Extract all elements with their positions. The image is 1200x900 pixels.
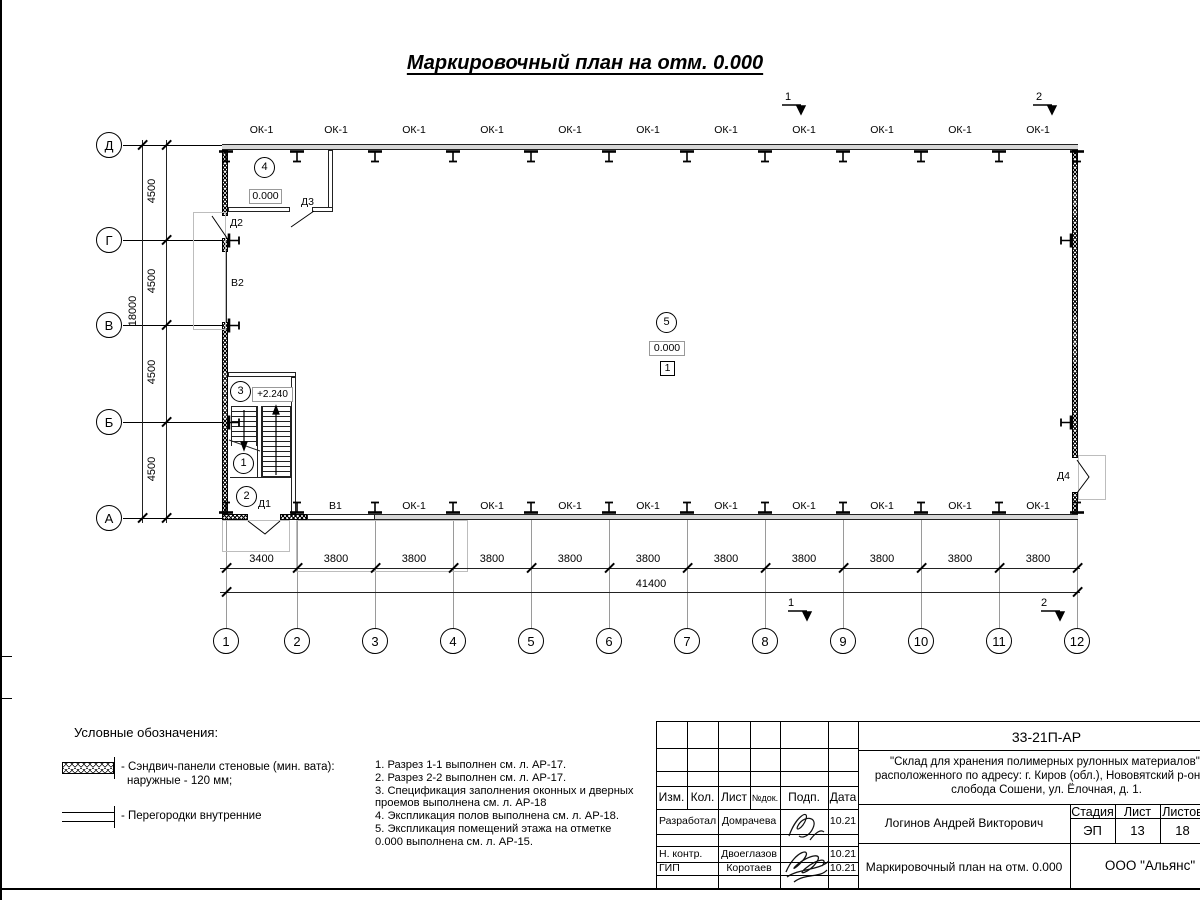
column-icon (228, 415, 241, 431)
titleblock-line (780, 721, 781, 888)
axis-line (123, 145, 222, 146)
legend-swatch-endbar (114, 757, 115, 779)
legend-swatch-sandwich-panel (62, 762, 114, 774)
door-label-d3: Д3 (301, 196, 314, 208)
note-line: 3. Спецификация заполнения оконных и две… (375, 785, 634, 798)
axis-circle-row: Б (96, 409, 122, 435)
column-icon (445, 150, 461, 163)
section-mark-2-bottom: 2 (1037, 597, 1051, 609)
titleblock-line (1115, 804, 1116, 843)
window-label-bottom: ОК-1 (623, 500, 673, 512)
exterior-pad-outline (1078, 455, 1106, 500)
column-icon (679, 150, 695, 163)
wall-segment (228, 372, 296, 377)
tb-date-gip: 10.21 (828, 862, 858, 874)
titleblock-line (687, 721, 688, 809)
note-line: 0.000 выполнена см. л. АР-15. (375, 836, 634, 849)
dimension-line (220, 592, 1080, 593)
legend-item1-line1: - Сэндвич-панели стеновые (мин. вата): (121, 761, 335, 774)
column-icon (289, 150, 305, 163)
column-icon (991, 150, 1007, 163)
tb-sheetno-header: Лист (1115, 805, 1160, 819)
window-label-top: ОК-1 (779, 124, 829, 136)
axis-circle-col: 10 (908, 628, 934, 654)
dim-chain-left: 4500 (146, 444, 158, 494)
signature-developer (789, 814, 824, 840)
axis-circle-col: 8 (752, 628, 778, 654)
drawing-sheet: Маркировочный план на отм. 0.000 ДГВБА12… (0, 0, 1200, 900)
tb-name-ncontrol: Двоеглазов (718, 848, 780, 860)
column-icon (1069, 501, 1085, 514)
axis-line (123, 518, 222, 519)
tb-sheets-value: 18 (1160, 823, 1200, 838)
column-icon (757, 501, 773, 514)
column-icon (523, 501, 539, 514)
tb-col-list: Лист (718, 790, 750, 804)
tb-stage-header: Стадия (1070, 805, 1115, 819)
window-label-bottom: ОК-1 (1013, 500, 1063, 512)
titleblock-line (1160, 804, 1161, 843)
note-line: проемов выполнена см. л. АР-18 (375, 797, 634, 810)
window-label-top: ОК-1 (935, 124, 985, 136)
dim-chain-left: 4500 (146, 166, 158, 216)
column-icon (679, 501, 695, 514)
dim-chain-bottom: 3800 (774, 553, 834, 565)
dimension-line (142, 140, 143, 523)
legend-item2-line1: - Перегородки внутренние (121, 810, 262, 823)
column-icon (523, 150, 539, 163)
axis-circle-col: 12 (1064, 628, 1090, 654)
axis-circle-col: 7 (674, 628, 700, 654)
wall-segment (1072, 150, 1078, 458)
window-label-bottom: ОК-1 (545, 500, 595, 512)
window-label-top: ОК-1 (623, 124, 673, 136)
note-line: 4. Экспликация полов выполнена см. л. АР… (375, 810, 634, 823)
dim-chain-bottom: 3800 (462, 553, 522, 565)
dim-chain-left: 4500 (146, 347, 158, 397)
exterior-pad-outline (222, 520, 290, 552)
column-icon (218, 501, 234, 514)
project-line2: расположенного по адресу: г. Киров (обл.… (858, 770, 1200, 782)
tb-date-developer: 10.21 (828, 815, 858, 827)
project-line1: "Склад для хранения полимерных рулонных … (858, 756, 1200, 768)
room-marker-3: 3 (230, 381, 251, 402)
column-icon (367, 150, 383, 163)
elevation-box-hall: 0.000 (649, 341, 685, 356)
dim-total-bottom: 41400 (611, 578, 691, 590)
axis-circle-row: А (96, 505, 122, 531)
column-icon (228, 318, 241, 334)
titleblock-line (828, 721, 829, 888)
tb-col-ndok: №док. (750, 793, 780, 803)
grid-extension-line (921, 520, 922, 628)
tb-approver: Логинов Андрей Викторович (858, 816, 1070, 830)
legend-item1-line2: наружные - 120 мм; (127, 775, 232, 788)
window-label-bottom: ОК-1 (701, 500, 751, 512)
tb-role-ncontrol: Н. контр. (659, 848, 702, 860)
dim-chain-bottom: 3800 (618, 553, 678, 565)
stair-flight (262, 406, 291, 478)
section-mark-1-top: 1 (781, 91, 795, 103)
column-icon (757, 150, 773, 163)
tb-role-gip: ГИП (659, 862, 680, 874)
column-icon (1060, 415, 1073, 431)
doc-code: 33-21П-АР (858, 729, 1200, 745)
window-label-top: ОК-1 (857, 124, 907, 136)
door-label-d1: Д1 (258, 498, 271, 510)
tb-stage-value: ЭП (1070, 823, 1115, 838)
partition-label-v1: В1 (329, 500, 342, 512)
door-label-d2: Д2 (230, 217, 243, 229)
dim-chain-bottom: 3800 (306, 553, 366, 565)
titleblock-line (718, 721, 719, 888)
axis-circle-row: Г (96, 227, 122, 253)
axis-circle-row: Д (96, 132, 122, 158)
column-icon (991, 501, 1007, 514)
room-marker-1: 1 (233, 453, 254, 474)
tb-date-ncontrol: 10.21 (828, 848, 858, 860)
dim-chain-bottom: 3800 (852, 553, 912, 565)
grid-extension-line (999, 520, 1000, 628)
dim-chain-bottom: 3800 (384, 553, 444, 565)
window-label-top: ОК-1 (545, 124, 595, 136)
fold-mark (0, 698, 12, 699)
tb-col-izm: Изм. (656, 790, 687, 804)
grid-extension-line (531, 520, 532, 628)
titleblock-line (1070, 804, 1071, 888)
axis-line (123, 422, 222, 423)
column-icon (367, 501, 383, 514)
sheet-bottom-border (0, 888, 1200, 890)
column-icon (289, 501, 305, 514)
door-swing-d3 (291, 211, 314, 227)
grid-extension-line (687, 520, 688, 628)
section-mark-1-bottom: 1 (784, 597, 798, 609)
column-icon (913, 150, 929, 163)
dim-chain-left: 4500 (146, 256, 158, 306)
window-label-top: ОК-1 (311, 124, 361, 136)
axis-circle-col: 2 (284, 628, 310, 654)
dim-chain-bottom: 3800 (1008, 553, 1068, 565)
window-label-top: ОК-1 (701, 124, 751, 136)
column-icon (835, 501, 851, 514)
legend-swatch-endbar (114, 806, 115, 828)
room-marker-2: 2 (236, 486, 257, 507)
tb-sheets-header: Листов (1160, 805, 1200, 819)
note-line: 5. Экспликация помещений этажа на отметк… (375, 823, 634, 836)
note-line: 2. Разрез 2-2 выполнен см. л. АР-17. (375, 772, 634, 785)
axis-circle-col: 1 (213, 628, 239, 654)
axis-circle-row: В (96, 312, 122, 338)
window-label-bottom: ОК-1 (779, 500, 829, 512)
wall-segment (257, 406, 262, 478)
titleblock-line (858, 750, 1200, 751)
window-label-top: ОК-1 (1013, 124, 1063, 136)
tb-company: ООО "Альянс" (1070, 858, 1200, 873)
elevation-box-vestibule: 0.000 (249, 189, 282, 204)
sheet-left-border (0, 0, 2, 900)
window-label-bottom: ОК-1 (857, 500, 907, 512)
window-label-bottom: ОК-1 (389, 500, 439, 512)
partition-label-v2: В2 (231, 277, 244, 289)
grid-extension-line (843, 520, 844, 628)
dim-chain-bottom: 3800 (696, 553, 756, 565)
section-mark-2-top: 2 (1032, 91, 1046, 103)
titleblock-line (858, 804, 1200, 805)
window-label-top: ОК-1 (467, 124, 517, 136)
tb-col-podp: Подп. (780, 790, 828, 804)
room-marker-4: 4 (254, 157, 275, 178)
axis-circle-col: 11 (986, 628, 1012, 654)
dim-chain-bottom: 3400 (232, 553, 292, 565)
wall-segment (222, 144, 1078, 150)
room-marker-5: 5 (656, 312, 677, 333)
dim-chain-bottom: 3800 (540, 553, 600, 565)
grid-extension-line (609, 520, 610, 628)
wall-segment (230, 477, 291, 478)
titleblock-line (750, 721, 751, 809)
dim-total-left: 18000 (127, 286, 139, 336)
tb-name-gip: Коротаев (718, 862, 780, 874)
project-line3: слобода Сошени, ул. Ёлочная, д. 1. (858, 784, 1200, 796)
axis-circle-col: 9 (830, 628, 856, 654)
axis-circle-col: 3 (362, 628, 388, 654)
tb-name-developer: Домрачева (718, 815, 780, 827)
note-line: 1. Разрез 1-1 выполнен см. л. АР-17. (375, 759, 634, 772)
dimension-line (220, 568, 1080, 569)
signature-ncontrol-gip (786, 852, 829, 882)
column-icon (601, 501, 617, 514)
column-icon (445, 501, 461, 514)
column-icon (601, 150, 617, 163)
column-icon (913, 501, 929, 514)
titleblock-line (656, 721, 1200, 722)
section-cut-marks (782, 105, 1064, 620)
titleblock-line (858, 843, 1200, 844)
axis-circle-col: 4 (440, 628, 466, 654)
tb-sheet-caption: Маркировочный план на отм. 0.000 (858, 860, 1070, 874)
floor-type-mark: 1 (660, 361, 675, 376)
wall-segment (312, 207, 333, 212)
tb-col-kol: Кол. (687, 790, 718, 804)
notes-block: 1. Разрез 1-1 выполнен см. л. АР-17.2. Р… (375, 759, 634, 849)
dimension-line (166, 140, 167, 523)
column-icon (228, 233, 241, 249)
window-label-top: ОК-1 (389, 124, 439, 136)
axis-circle-col: 5 (518, 628, 544, 654)
tb-role-developer: Разработал (659, 815, 716, 827)
window-label-top: ОК-1 (237, 124, 287, 136)
grid-extension-line (1077, 520, 1078, 628)
wall-segment (328, 150, 333, 210)
legend-heading: Условные обозначения: (74, 726, 218, 741)
window-label-bottom: ОК-1 (467, 500, 517, 512)
fold-mark (0, 656, 12, 657)
legend-swatch-partition (62, 812, 114, 822)
axis-circle-col: 6 (596, 628, 622, 654)
column-icon (1069, 150, 1085, 163)
titleblock-line (656, 721, 657, 888)
titleblock-line (1070, 818, 1200, 819)
column-icon (1060, 233, 1073, 249)
window-label-bottom: ОК-1 (935, 500, 985, 512)
wall-segment (228, 207, 290, 212)
wall-segment (375, 514, 1078, 520)
drawing-title: Маркировочный план на отм. 0.000 (300, 52, 870, 75)
titleblock-line (858, 721, 859, 888)
dim-chain-bottom: 3800 (930, 553, 990, 565)
elevation-box-stairs: +2.240 (252, 387, 293, 402)
grid-extension-line (765, 520, 766, 628)
tb-col-data: Дата (828, 790, 858, 804)
exterior-pad-outline (193, 212, 226, 330)
column-icon (218, 150, 234, 163)
tb-sheetno-value: 13 (1115, 823, 1160, 838)
column-icon (835, 150, 851, 163)
door-label-d4: Д4 (1057, 470, 1070, 482)
